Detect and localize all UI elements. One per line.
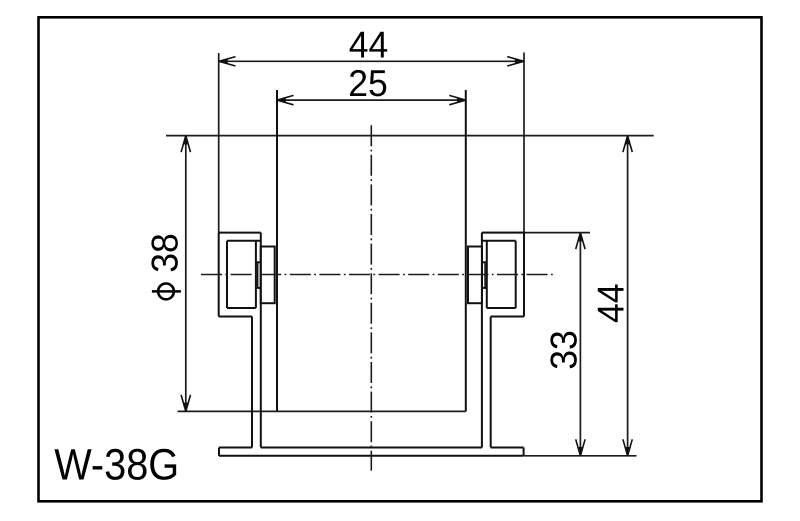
svg-text:38: 38 — [144, 233, 186, 273]
svg-text:33: 33 — [543, 330, 585, 370]
svg-text:W-38G: W-38G — [54, 440, 179, 489]
svg-text:44: 44 — [349, 23, 389, 65]
svg-text:44: 44 — [590, 284, 632, 324]
svg-text:25: 25 — [348, 62, 388, 104]
